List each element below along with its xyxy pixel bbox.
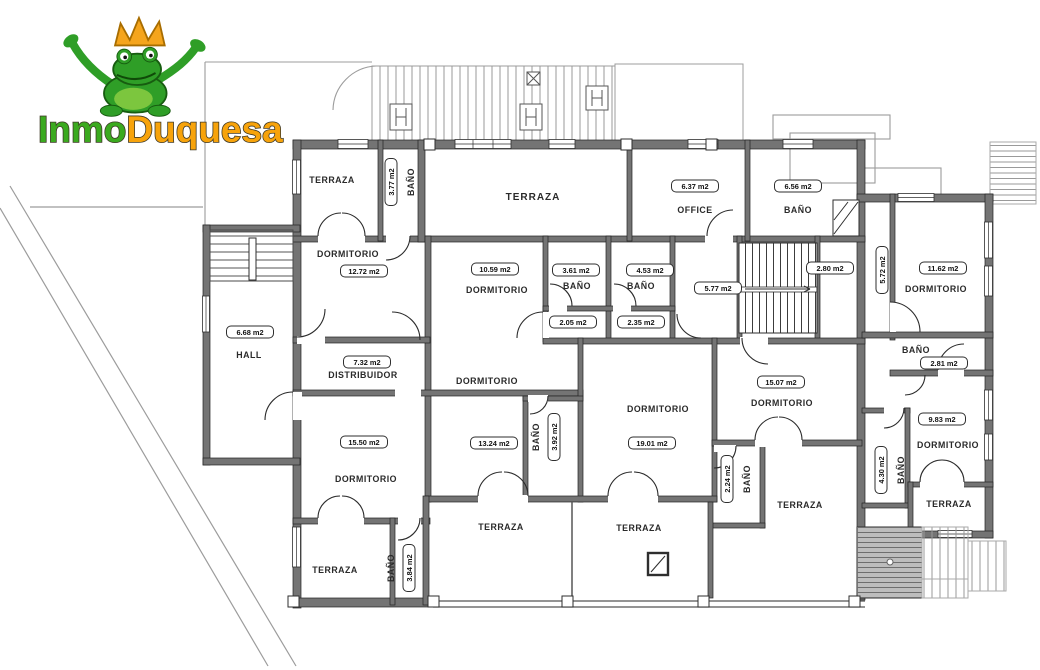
- svg-text:2.05 m2: 2.05 m2: [559, 318, 586, 327]
- area-paso-572: 5.72 m2: [876, 247, 888, 294]
- label-dormitorio-2: DORMITORIO: [466, 285, 528, 295]
- svg-text:13.24 m2: 13.24 m2: [478, 439, 509, 448]
- svg-text:15.50 m2: 15.50 m2: [348, 438, 379, 447]
- label-terraza-top-big: TERRAZA: [506, 192, 561, 203]
- area-paso-235: 2.35 m2: [618, 316, 665, 328]
- label-bano-361: BAÑO: [563, 281, 591, 291]
- label-bano-392: BAÑO 3.92 m2: [531, 414, 560, 461]
- svg-text:6.56 m2: 6.56 m2: [784, 182, 811, 191]
- svg-text:11.62 m2: 11.62 m2: [928, 264, 959, 273]
- svg-text:19.01 m2: 19.01 m2: [636, 439, 667, 448]
- area-bano-656: 6.56 m2: [775, 180, 822, 192]
- label-bano-281: BAÑO: [902, 345, 930, 355]
- label-dormitorio-7: DORMITORIO: [917, 440, 979, 450]
- chimney-detail: [648, 553, 668, 575]
- svg-text:3.84 m2: 3.84 m2: [405, 554, 414, 581]
- svg-text:4.30 m2: 4.30 m2: [877, 456, 886, 483]
- label-bano-377: BAÑO 3.77 m2: [385, 159, 416, 206]
- area-dormitorio-3: 11.62 m2: [920, 262, 967, 274]
- svg-text:2.35 m2: 2.35 m2: [627, 318, 654, 327]
- label-bano-453: BAÑO: [627, 281, 655, 291]
- area-hall: 6.68 m2: [227, 326, 274, 338]
- label-dormitorio-3: DORMITORIO: [905, 284, 967, 294]
- label-bano-430: BAÑO 4.30 m2: [875, 447, 906, 494]
- svg-text:3.77 m2: 3.77 m2: [387, 168, 396, 195]
- svg-text:BAÑO: BAÑO: [742, 465, 752, 493]
- svg-text:BAÑO: BAÑO: [531, 423, 541, 451]
- label-dormitorio-6: DORMITORIO: [751, 398, 813, 408]
- area-bano-281: 2.81 m2: [921, 357, 968, 369]
- svg-text:7.32 m2: 7.32 m2: [353, 358, 380, 367]
- svg-text:5.72 m2: 5.72 m2: [878, 256, 887, 283]
- floorplan-page: { "logo": { "part1": "Inmo", "part2": "D…: [0, 0, 1040, 670]
- area-office: 6.37 m2: [672, 180, 719, 192]
- area-dormitorio-8: 15.50 m2: [341, 436, 388, 448]
- svg-text:3.92 m2: 3.92 m2: [550, 423, 559, 450]
- svg-text:BAÑO: BAÑO: [386, 554, 396, 582]
- label-bano-224: BAÑO 2.24 m2: [721, 456, 752, 503]
- area-dormitorio-1: 12.72 m2: [341, 265, 388, 277]
- label-dormitorio-4: DORMITORIO: [456, 376, 518, 386]
- label-terraza-bottom-2: TERRAZA: [616, 523, 662, 533]
- area-dormitorio-6: 15.07 m2: [758, 376, 805, 388]
- area-pasillo-577: 5.77 m2: [695, 282, 742, 294]
- label-dormitorio-1: DORMITORIO: [317, 249, 379, 259]
- closet-detail: [833, 200, 859, 236]
- label-office: OFFICE: [677, 205, 712, 215]
- area-paso-280: 2.80 m2: [807, 262, 854, 274]
- svg-text:4.53 m2: 4.53 m2: [636, 266, 663, 275]
- label-dormitorio-5: DORMITORIO: [627, 404, 689, 414]
- label-terraza-mid-right: TERRAZA: [777, 500, 823, 510]
- area-bano-361: 3.61 m2: [553, 264, 600, 276]
- svg-text:6.68 m2: 6.68 m2: [236, 328, 263, 337]
- frog-logo-icon: InmoDuquesa: [30, 14, 330, 154]
- svg-text:5.77 m2: 5.77 m2: [704, 284, 731, 293]
- area-paso-205: 2.05 m2: [550, 316, 597, 328]
- label-distribuidor: DISTRIBUIDOR: [328, 370, 398, 380]
- svg-text:12.72 m2: 12.72 m2: [348, 267, 379, 276]
- svg-text:BAÑO: BAÑO: [896, 456, 906, 484]
- svg-text:2.24 m2: 2.24 m2: [723, 465, 732, 492]
- agency-logo: InmoDuquesa: [30, 14, 330, 154]
- svg-text:6.37 m2: 6.37 m2: [681, 182, 708, 191]
- svg-text:3.61 m2: 3.61 m2: [562, 266, 589, 275]
- svg-text:10.59 m2: 10.59 m2: [479, 265, 510, 274]
- staircase-main: [739, 243, 817, 333]
- label-terraza-bottom-left: TERRAZA: [312, 565, 358, 575]
- label-terraza-top-left: TERRAZA: [309, 175, 355, 185]
- area-dormitorio-4: 13.24 m2: [471, 437, 518, 449]
- area-distribuidor: 7.32 m2: [344, 356, 391, 368]
- area-dormitorio-7: 9.83 m2: [919, 413, 966, 425]
- svg-text:2.81 m2: 2.81 m2: [930, 359, 957, 368]
- logo-text: InmoDuquesa: [38, 109, 283, 150]
- staircase-hall: [210, 230, 293, 281]
- label-dormitorio-8: DORMITORIO: [335, 474, 397, 484]
- svg-text:9.83 m2: 9.83 m2: [928, 415, 955, 424]
- svg-text:2.80 m2: 2.80 m2: [816, 264, 843, 273]
- area-dormitorio-5: 19.01 m2: [629, 437, 676, 449]
- label-terraza-right: TERRAZA: [926, 499, 972, 509]
- area-dormitorio-2: 10.59 m2: [472, 263, 519, 275]
- label-terraza-bottom-1: TERRAZA: [478, 522, 524, 532]
- area-bano-453: 4.53 m2: [627, 264, 674, 276]
- svg-text:15.07 m2: 15.07 m2: [765, 378, 796, 387]
- label-bano-656: BAÑO: [784, 205, 812, 215]
- label-hall: HALL: [236, 350, 262, 360]
- svg-text:BAÑO: BAÑO: [406, 168, 416, 196]
